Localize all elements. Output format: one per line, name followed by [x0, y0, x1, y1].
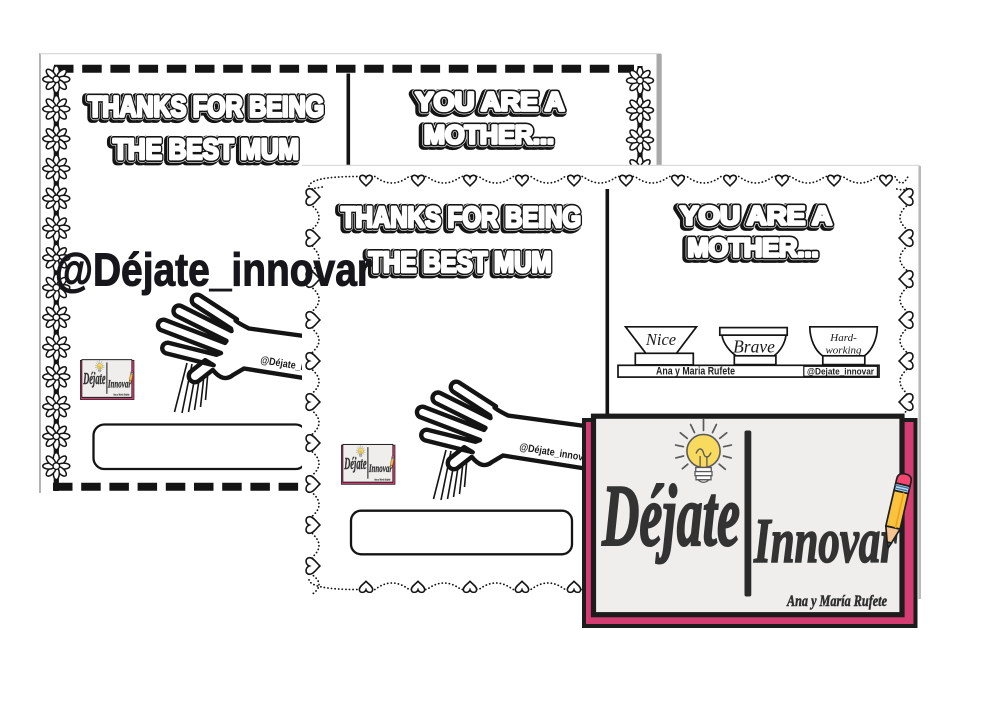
svg-text:Brave: Brave — [733, 337, 775, 357]
svg-text:Hard-: Hard- — [829, 332, 857, 344]
svg-text:Nice: Nice — [645, 330, 676, 349]
svg-text:working: working — [825, 345, 862, 357]
svg-text:@Déjate_innovar: @Déjate_innovar — [55, 244, 372, 296]
svg-text:@Dejate_innovar: @Dejate_innovar — [807, 365, 874, 376]
svg-text:Ana y Maria Rufete: Ana y Maria Rufete — [656, 366, 735, 378]
